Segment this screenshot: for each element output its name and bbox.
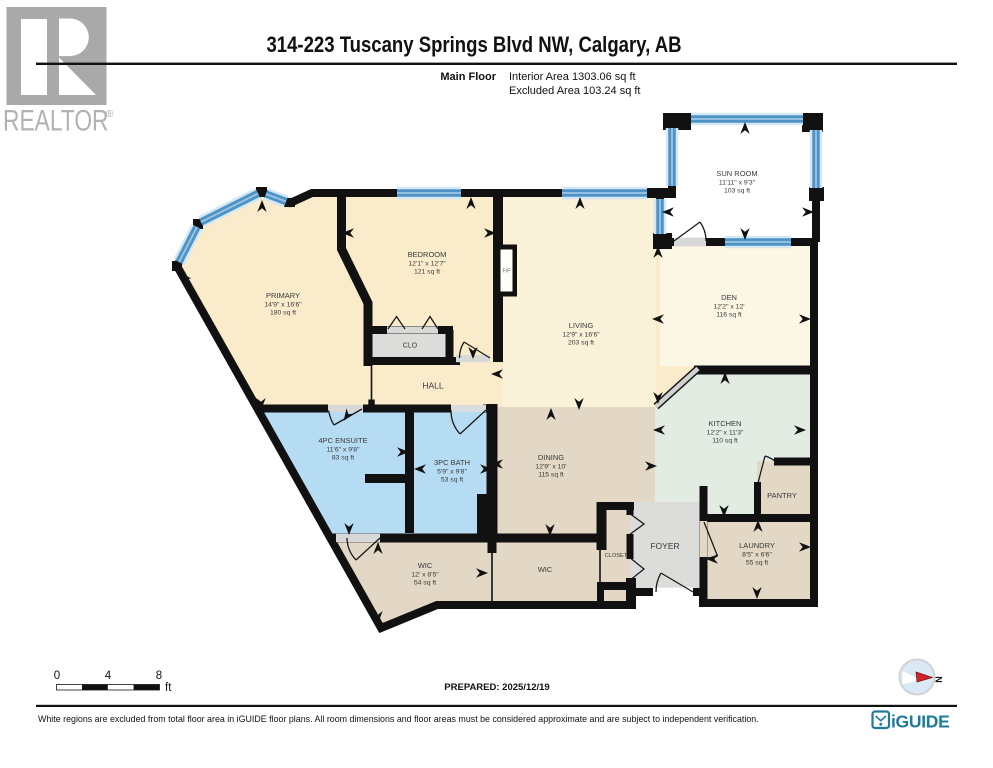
- svg-text:116 sq ft: 116 sq ft: [716, 312, 742, 319]
- svg-text:53 sq ft: 53 sq ft: [441, 477, 463, 484]
- svg-text:iGUIDE: iGUIDE: [891, 712, 950, 732]
- svg-text:DINING: DINING: [538, 453, 564, 462]
- svg-text:8'5" x 6'6": 8'5" x 6'6": [742, 552, 772, 559]
- svg-text:12'1" x 12'7": 12'1" x 12'7": [408, 261, 446, 268]
- svg-text:4: 4: [105, 670, 112, 682]
- svg-text:11'6" x 9'8": 11'6" x 9'8": [327, 447, 361, 454]
- svg-text:12'9" x 16'6": 12'9" x 16'6": [562, 332, 600, 339]
- svg-text:203 sq ft: 203 sq ft: [568, 340, 594, 347]
- svg-text:12' x 8'5": 12' x 8'5": [411, 572, 439, 579]
- svg-text:83 sq ft: 83 sq ft: [332, 455, 354, 462]
- svg-text:White regions are excluded fro: White regions are excluded from total fl…: [38, 714, 759, 724]
- svg-text:11'11" x 9'3": 11'11" x 9'3": [719, 180, 756, 187]
- svg-text:®: ®: [106, 109, 114, 120]
- svg-text:180 sq ft: 180 sq ft: [270, 310, 296, 317]
- svg-text:54 sq ft: 54 sq ft: [414, 580, 436, 587]
- svg-text:Main Floor: Main Floor: [440, 71, 496, 83]
- svg-text:DEN: DEN: [721, 293, 737, 302]
- svg-text:121 sq ft: 121 sq ft: [414, 269, 440, 276]
- svg-text:SUN ROOM: SUN ROOM: [716, 169, 757, 178]
- svg-text:ft: ft: [165, 682, 172, 694]
- svg-text:4PC ENSUITE: 4PC ENSUITE: [318, 436, 367, 445]
- svg-text:55 sq ft: 55 sq ft: [746, 560, 768, 567]
- svg-text:3PC BATH: 3PC BATH: [434, 458, 470, 467]
- svg-text:115 sq ft: 115 sq ft: [538, 472, 564, 479]
- svg-text:103 sq ft: 103 sq ft: [724, 188, 750, 195]
- svg-text:WIC: WIC: [418, 561, 433, 570]
- svg-text:PRIMARY: PRIMARY: [266, 291, 300, 300]
- svg-text:314-223 Tuscany Springs Blvd N: 314-223 Tuscany Springs Blvd NW, Calgary…: [266, 32, 681, 57]
- svg-text:5'9" x 9'8": 5'9" x 9'8": [437, 469, 467, 476]
- svg-text:Excluded Area 103.24 sq ft: Excluded Area 103.24 sq ft: [509, 85, 640, 97]
- svg-text:N: N: [934, 676, 944, 683]
- svg-text:14'9" x 16'6": 14'9" x 16'6": [264, 302, 302, 309]
- svg-text:LIVING: LIVING: [569, 321, 594, 330]
- svg-text:F/P: F/P: [502, 269, 511, 275]
- svg-text:WIC: WIC: [538, 565, 553, 574]
- svg-text:CLOSET: CLOSET: [605, 553, 628, 559]
- svg-text:BEDROOM: BEDROOM: [408, 250, 447, 259]
- svg-text:110 sq ft: 110 sq ft: [712, 438, 738, 445]
- svg-text:KITCHEN: KITCHEN: [709, 419, 742, 428]
- svg-text:12'2" x 12': 12'2" x 12': [713, 304, 744, 311]
- svg-text:12'9" x 10': 12'9" x 10': [535, 464, 566, 471]
- svg-text:REALTOR: REALTOR: [3, 103, 109, 137]
- svg-text:PANTRY: PANTRY: [767, 491, 797, 500]
- svg-text:Interior Area 1303.06 sq ft: Interior Area 1303.06 sq ft: [509, 71, 636, 83]
- svg-text:CLO: CLO: [403, 343, 418, 350]
- svg-text:HALL: HALL: [422, 381, 444, 391]
- svg-text:PREPARED: 2025/12/19: PREPARED: 2025/12/19: [444, 682, 549, 693]
- svg-text:LAUNDRY: LAUNDRY: [739, 541, 775, 550]
- svg-text:FOYER: FOYER: [650, 541, 679, 551]
- svg-text:12'2" x 11'3": 12'2" x 11'3": [707, 430, 744, 437]
- svg-text:0: 0: [54, 670, 60, 682]
- svg-text:8: 8: [156, 670, 162, 682]
